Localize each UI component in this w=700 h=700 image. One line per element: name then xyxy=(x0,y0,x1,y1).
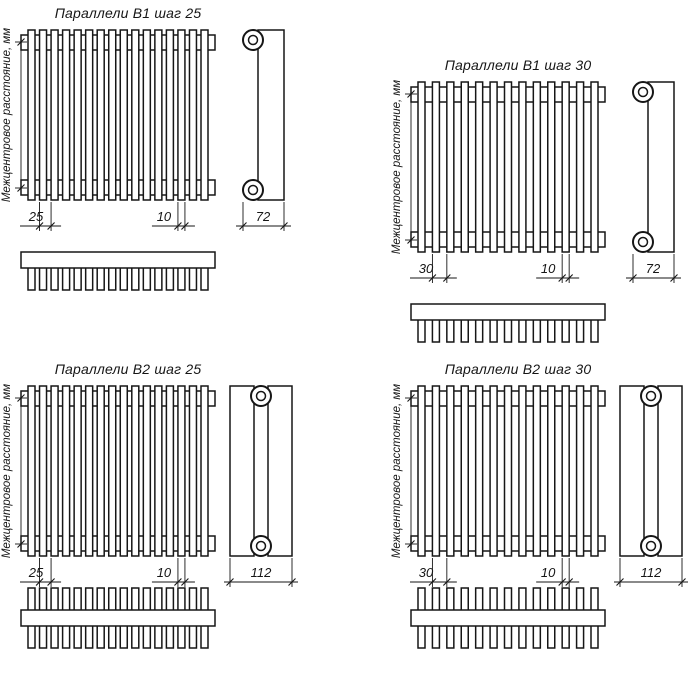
side-view xyxy=(243,30,284,200)
panel-b2-step30: Параллели В2 шаг 30 Межцентровое расстоя… xyxy=(390,356,700,660)
radiator-drawing-b2-step25: Параллели В2 шаг 25 Межцентровое расстоя… xyxy=(0,356,350,660)
depth-dim-label: 112 xyxy=(641,565,662,580)
top-view xyxy=(411,304,605,342)
tube-width-dim-label: 10 xyxy=(157,565,172,580)
front-view xyxy=(411,82,605,252)
panel-b1-step30: Параллели В1 шаг 30 Межцентровое расстоя… xyxy=(390,52,700,352)
side-view xyxy=(620,386,682,556)
front-view xyxy=(21,30,215,200)
vertical-dim-label: Межцентровое расстояние, мм xyxy=(391,384,403,558)
tube-width-dim-label: 10 xyxy=(541,261,556,276)
depth-dim-label: 72 xyxy=(256,209,271,224)
top-view xyxy=(21,588,215,648)
panel-title: Параллели В2 шаг 30 xyxy=(445,361,592,377)
panel-title: Параллели В2 шаг 25 xyxy=(55,361,202,377)
top-view xyxy=(21,252,215,290)
vertical-dim-label: Межцентровое расстояние, мм xyxy=(391,80,403,254)
depth-dim-label: 72 xyxy=(646,261,661,276)
drawing-sheet: Параллели В1 шаг 25 Межцентровое расстоя… xyxy=(0,0,700,700)
tube-width-dim-label: 10 xyxy=(541,565,556,580)
vertical-dim-label: Межцентровое расстояние, мм xyxy=(1,384,13,558)
depth-dim-label: 112 xyxy=(251,565,272,580)
side-view xyxy=(230,386,292,556)
panel-title: Параллели В1 шаг 25 xyxy=(55,5,202,21)
side-view xyxy=(633,82,674,252)
panel-title: Параллели В1 шаг 30 xyxy=(445,57,592,73)
vertical-dim-label: Межцентровое расстояние, мм xyxy=(1,28,13,202)
panel-b1-step25: Параллели В1 шаг 25 Межцентровое расстоя… xyxy=(0,0,350,300)
pitch-dim-label: 30 xyxy=(419,565,434,580)
top-view xyxy=(411,588,605,648)
radiator-drawing-b1-step25: Параллели В1 шаг 25 Межцентровое расстоя… xyxy=(0,0,350,300)
pitch-dim-label: 25 xyxy=(28,565,44,580)
radiator-drawing-b1-step30: Параллели В1 шаг 30 Межцентровое расстоя… xyxy=(390,52,700,352)
radiator-drawing-b2-step30: Параллели В2 шаг 30 Межцентровое расстоя… xyxy=(390,356,700,660)
front-view xyxy=(411,386,605,556)
pitch-dim-label: 30 xyxy=(419,261,434,276)
pitch-dim-label: 25 xyxy=(28,209,44,224)
front-view xyxy=(21,386,215,556)
tube-width-dim-label: 10 xyxy=(157,209,172,224)
panel-b2-step25: Параллели В2 шаг 25 Межцентровое расстоя… xyxy=(0,356,350,660)
